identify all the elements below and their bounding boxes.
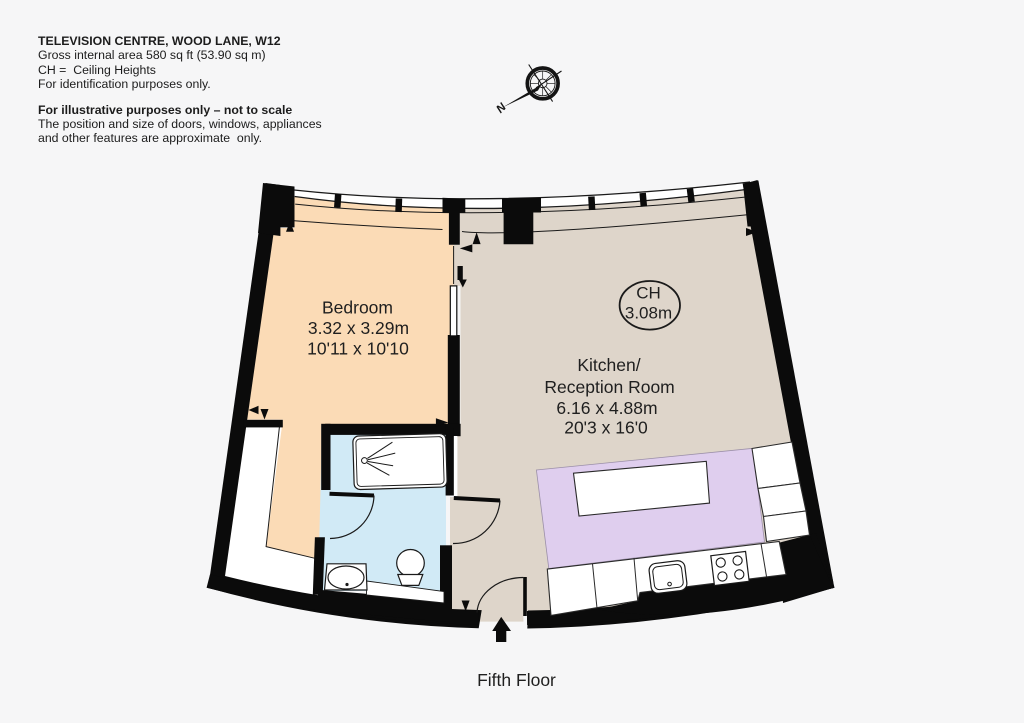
svg-text:Kitchen/: Kitchen/ [577, 355, 640, 375]
svg-text:6.16 x 4.88m: 6.16 x 4.88m [556, 398, 657, 418]
svg-text:Fifth Floor: Fifth Floor [477, 670, 556, 690]
svg-text:3.32 x 3.29m: 3.32 x 3.29m [308, 318, 409, 338]
svg-text:3.08m: 3.08m [625, 304, 672, 323]
svg-text:Reception Room: Reception Room [544, 377, 674, 397]
svg-text:N: N [494, 101, 509, 116]
svg-text:Bedroom: Bedroom [322, 298, 393, 318]
svg-text:10'11 x 10'10: 10'11 x 10'10 [307, 339, 409, 359]
svg-text:20'3 x 16'0: 20'3 x 16'0 [564, 418, 648, 438]
svg-text:CH: CH [636, 284, 661, 303]
